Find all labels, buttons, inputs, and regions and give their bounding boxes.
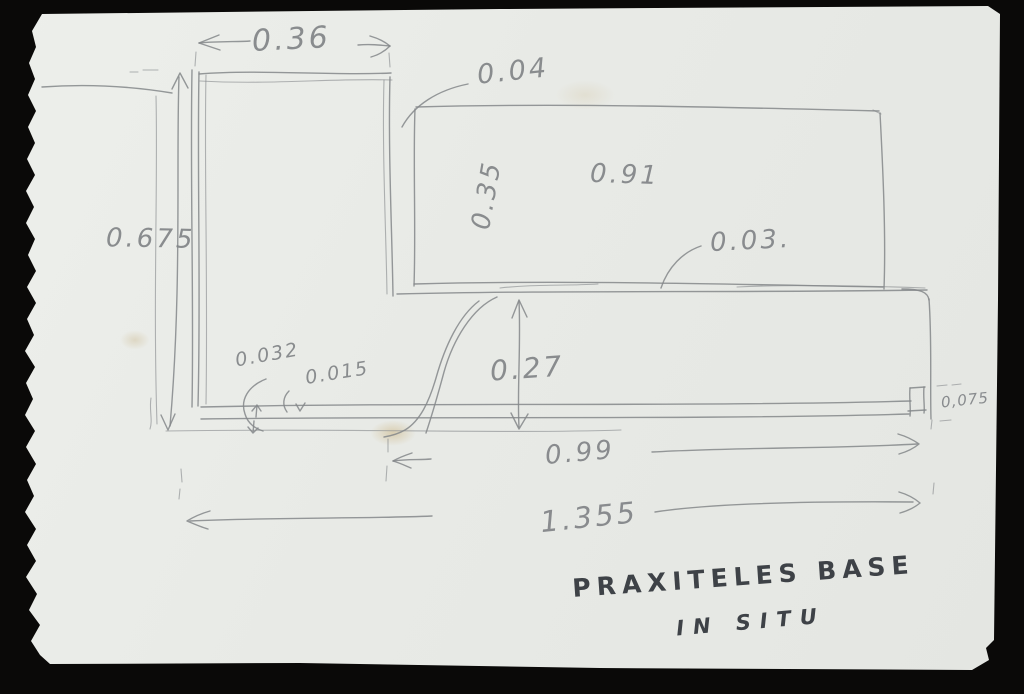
dim-label-width-036: 0.36 bbox=[251, 20, 332, 59]
dim-label-thickness-003: 0.03. bbox=[709, 224, 792, 258]
molding-profile-curves bbox=[384, 297, 497, 437]
width-099-dimension-arrows bbox=[386, 420, 932, 481]
dim-label-height-027: 0.27 bbox=[489, 349, 565, 387]
leader-line-003 bbox=[661, 246, 701, 288]
dim-label-width-091: 0.91 bbox=[589, 159, 660, 191]
dim-label-height-0675: 0.675 bbox=[106, 223, 196, 255]
dim-label-width-099: 0.99 bbox=[544, 435, 616, 471]
sketch-lines bbox=[0, 0, 1024, 694]
photo-background: 0.36 0.04 0.675 0.35 0.91 0.03. 0.032 0.… bbox=[0, 0, 1024, 694]
leader-line-0015 bbox=[284, 391, 305, 412]
